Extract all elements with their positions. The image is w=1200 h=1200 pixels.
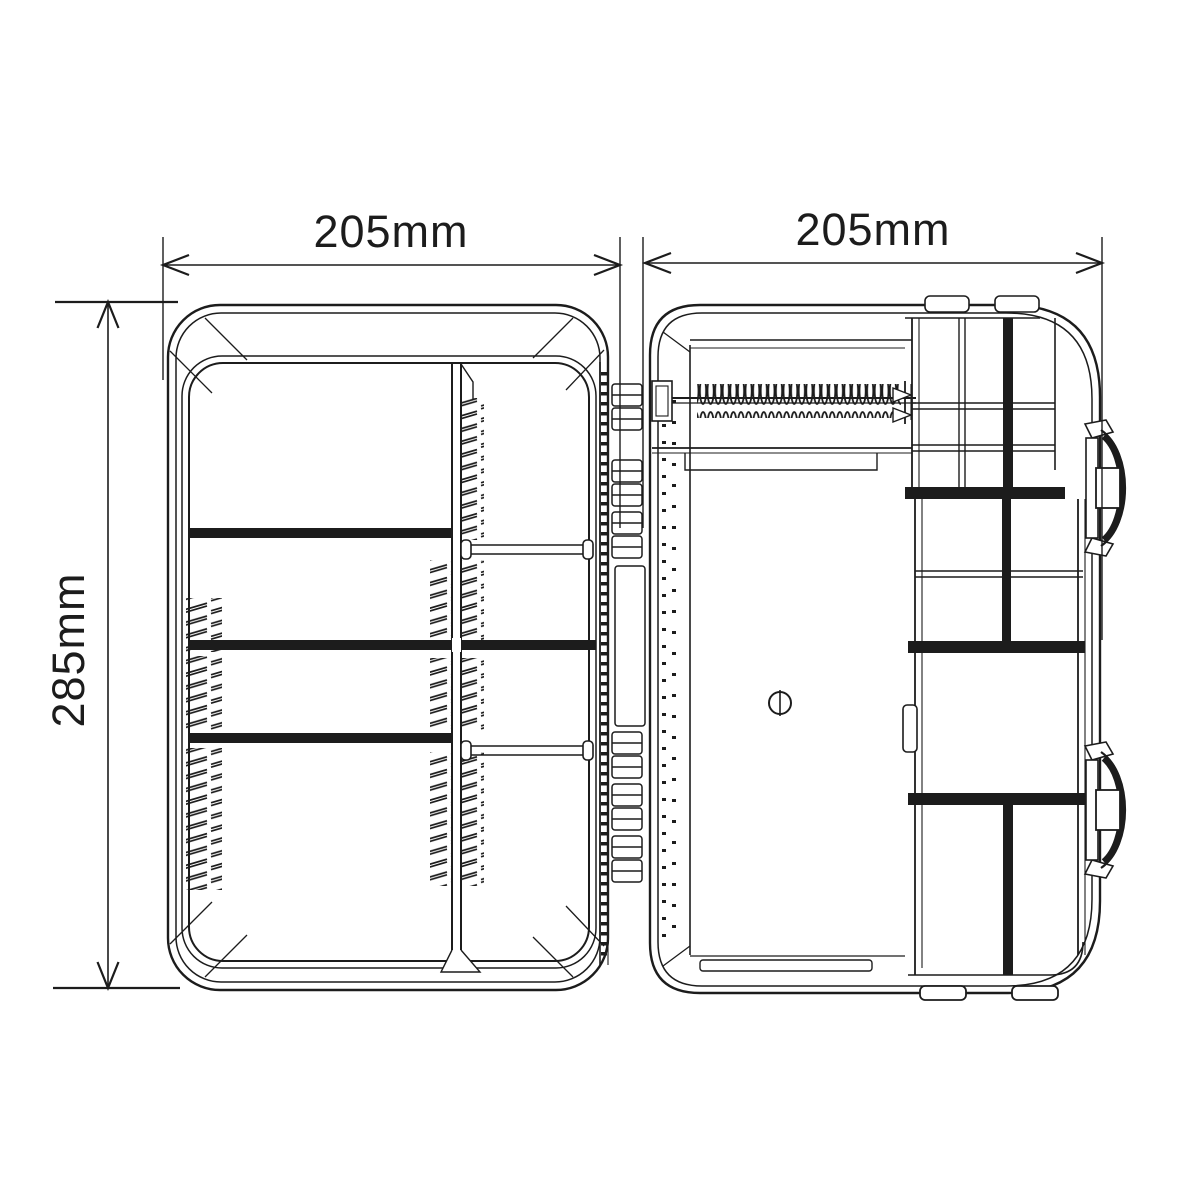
technical-drawing-page: 205mm 205mm 285mm [0, 0, 1200, 1200]
hinge-plate [615, 566, 645, 726]
shelf [188, 640, 596, 650]
foot-tab [920, 986, 966, 1000]
dimension-label-right-width: 205mm [795, 204, 950, 255]
latch-grip [1096, 468, 1120, 508]
coil-spring [697, 384, 901, 418]
tackle-box-technical-drawing: 205mm 205mm 285mm [0, 0, 1200, 1200]
shelf [188, 528, 452, 538]
shelf [188, 733, 452, 743]
screw-head [769, 690, 791, 716]
dimension-label-left-width: 205mm [313, 206, 468, 257]
latch-grip [1096, 790, 1120, 830]
dimension-label-height: 285mm [43, 572, 94, 727]
side-tab [903, 705, 917, 752]
foot-tab [1012, 986, 1058, 1000]
bottom-rail [700, 960, 872, 971]
top-clip-tab [925, 296, 969, 312]
top-clip-tab [995, 296, 1039, 312]
